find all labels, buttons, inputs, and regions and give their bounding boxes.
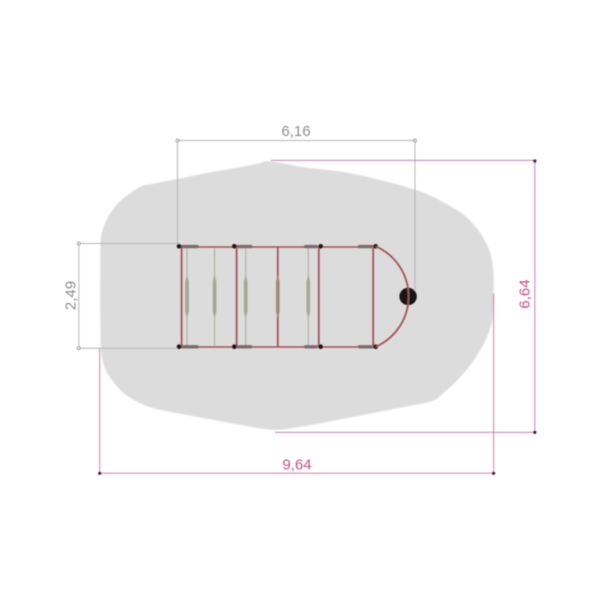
svg-text:2,49: 2,49 <box>63 281 80 310</box>
svg-text:6,64: 6,64 <box>517 279 534 308</box>
svg-text:6,16: 6,16 <box>281 123 310 140</box>
svg-text:9,64: 9,64 <box>282 457 311 474</box>
